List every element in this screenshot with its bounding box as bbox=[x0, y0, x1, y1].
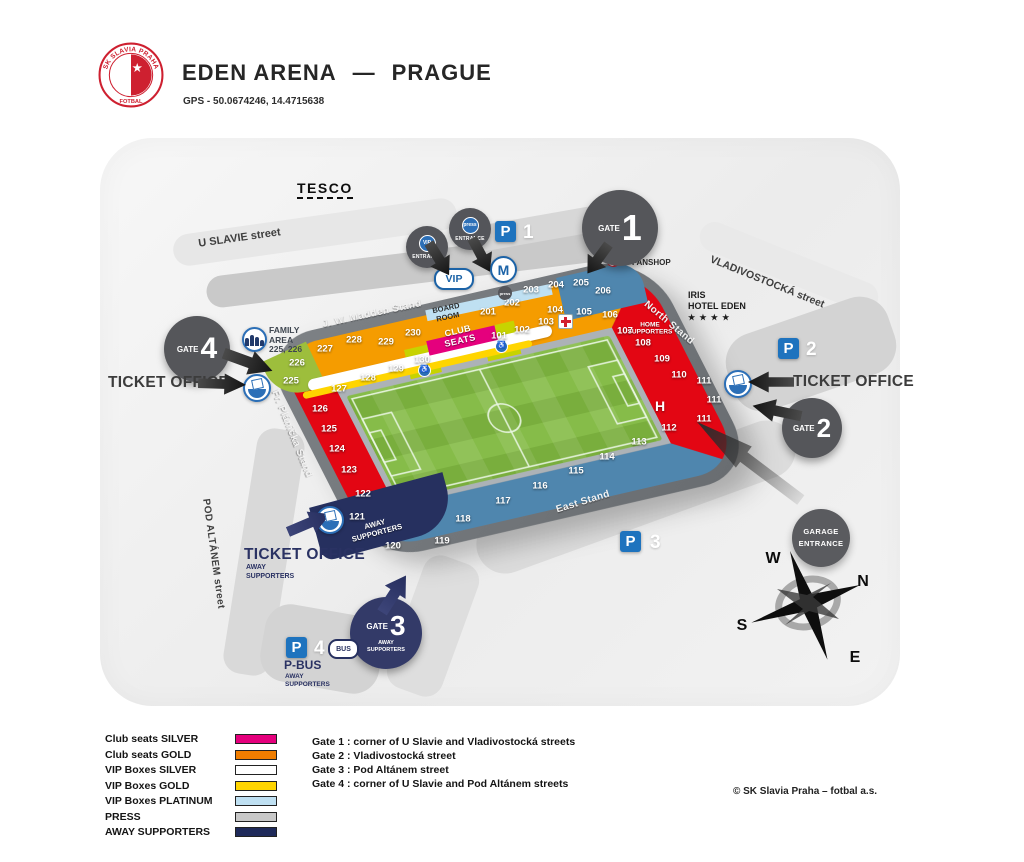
section-204: 204 bbox=[548, 280, 564, 291]
section-105: 105 bbox=[576, 307, 592, 318]
bus-text: BUS bbox=[336, 646, 351, 653]
wheelchair-icon-130: ♿ bbox=[418, 364, 431, 377]
slavia-logo: SK SLAVIA PRAHA FOTBAL ★ bbox=[98, 42, 164, 108]
section-206: 206 bbox=[595, 286, 611, 297]
section-228: 228 bbox=[346, 335, 362, 346]
section-230: 230 bbox=[405, 328, 421, 339]
section-109: 109 bbox=[654, 354, 670, 365]
section-113: 113 bbox=[631, 437, 646, 448]
section-226: 226 bbox=[289, 358, 305, 369]
tesco-label: TESCO bbox=[297, 180, 353, 199]
home-supporters-label: HOME SUPPORTERS bbox=[628, 322, 673, 337]
legend-swatch bbox=[235, 812, 277, 822]
stadium-map-page: SK SLAVIA PRAHA FOTBAL ★ EDEN ARENA—PRAG… bbox=[0, 0, 1024, 862]
gate-1-circle: GATE 1 bbox=[582, 190, 658, 266]
wheelchair-icon-101: ♿ bbox=[495, 340, 508, 353]
gate-description-1: Gate 1 : corner of U Slavie and Vladivos… bbox=[312, 735, 575, 749]
section-225: 225 bbox=[283, 376, 299, 387]
garage-line1: GARAGE bbox=[803, 526, 838, 538]
legend-item-6: AWAY SUPPORTERS bbox=[105, 826, 277, 838]
gate-2-circle: GATE 2 bbox=[782, 398, 842, 458]
section-205: 205 bbox=[573, 278, 589, 289]
gate-4-word: GATE bbox=[177, 345, 199, 354]
section-121: 121 bbox=[349, 512, 365, 523]
p1-letter: P bbox=[500, 223, 510, 240]
section-120: 120 bbox=[385, 541, 401, 552]
parking-p4-sign: P bbox=[286, 637, 307, 658]
gate-4-circle: GATE 4 bbox=[164, 316, 230, 382]
section-110: 110 bbox=[671, 370, 686, 381]
section-114: 114 bbox=[599, 452, 614, 463]
section-203: 203 bbox=[523, 285, 539, 296]
parking-p4-number: 4 bbox=[314, 638, 325, 660]
h-marker: H bbox=[655, 398, 665, 414]
compass-north: N bbox=[857, 573, 869, 591]
legend-item-4: VIP Boxes PLATINUM bbox=[105, 795, 277, 807]
p3-letter: P bbox=[625, 533, 635, 550]
section-106: 106 bbox=[602, 310, 618, 321]
parking-p3-sign: P bbox=[620, 531, 641, 552]
section-124: 124 bbox=[329, 444, 345, 455]
title-city: PRAGUE bbox=[392, 60, 492, 85]
section-103: 103 bbox=[538, 317, 554, 328]
legend-label: Club seats SILVER bbox=[105, 733, 198, 745]
page-title: EDEN ARENA—PRAGUE bbox=[182, 60, 492, 86]
section-111-a: 111 bbox=[697, 376, 712, 387]
legend-label: PRESS bbox=[105, 811, 141, 823]
parking-p2-number: 2 bbox=[806, 339, 817, 361]
mcdonalds-m: M bbox=[498, 262, 510, 278]
title-arena: EDEN ARENA bbox=[182, 60, 337, 85]
section-112: 112 bbox=[661, 423, 676, 434]
copyright: © SK Slavia Praha – fotbal a.s. bbox=[700, 786, 910, 797]
gate-1-number: 1 bbox=[622, 210, 642, 246]
section-102: 102 bbox=[514, 325, 530, 336]
gate-description-4: Gate 4 : corner of U Slavie and Pod Altá… bbox=[312, 777, 575, 791]
ticket-office-icon-west bbox=[243, 374, 271, 402]
gate-1-word: GATE bbox=[598, 224, 620, 233]
legend-swatch bbox=[235, 796, 277, 806]
first-aid-icon bbox=[558, 314, 573, 329]
bus-badge: BUS bbox=[328, 639, 359, 659]
section-126: 126 bbox=[312, 404, 328, 415]
parking-p2-sign: P bbox=[778, 338, 799, 359]
gate-3-sub2: SUPPORTERS bbox=[367, 647, 405, 654]
section-122: 122 bbox=[355, 489, 371, 500]
parking-p1-number: 1 bbox=[523, 222, 534, 244]
compass-south: S bbox=[737, 617, 748, 635]
gate-3-word: GATE bbox=[366, 622, 388, 631]
parking-p1-sign: P bbox=[495, 221, 516, 242]
parking-p3-number: 3 bbox=[650, 532, 661, 554]
section-123: 123 bbox=[341, 465, 357, 476]
press-badge-text: press bbox=[463, 222, 476, 228]
section-125: 125 bbox=[321, 424, 337, 435]
section-116: 116 bbox=[532, 481, 547, 492]
compass-west: W bbox=[765, 550, 780, 568]
ticket-office-away-sub: AWAY SUPPORTERS bbox=[246, 563, 294, 581]
legend-item-2: VIP Boxes SILVER bbox=[105, 764, 277, 776]
gate-descriptions: Gate 1 : corner of U Slavie and Vladivos… bbox=[312, 735, 575, 791]
section-227: 227 bbox=[317, 344, 333, 355]
ticket-office-icon-north bbox=[724, 370, 752, 398]
legend: Club seats SILVERClub seats GOLDVIP Boxe… bbox=[105, 733, 277, 838]
legend-item-5: PRESS bbox=[105, 811, 277, 823]
gate-2-word: GATE bbox=[793, 424, 815, 433]
legend-swatch bbox=[235, 827, 277, 837]
family-area-icon bbox=[242, 327, 267, 352]
p-bus-sub1: AWAY bbox=[285, 673, 330, 681]
title-dash: — bbox=[353, 60, 376, 85]
legend-label: VIP Boxes SILVER bbox=[105, 764, 196, 776]
ticket-office-away-label: TICKET OFFICE bbox=[244, 546, 365, 564]
p-bus-sub: AWAY SUPPORTERS bbox=[285, 673, 330, 690]
press-dot-text: press bbox=[500, 291, 511, 296]
press-gate-icon: press bbox=[498, 286, 512, 300]
logo-bottom-text: FOTBAL bbox=[120, 99, 143, 105]
vip-oval-text: VIP bbox=[446, 273, 463, 285]
iris-line2: HOTEL EDEN bbox=[688, 301, 746, 312]
ticket-office-north-label: TICKET OFFICE bbox=[793, 373, 914, 391]
compass-east: E bbox=[850, 649, 861, 667]
p-bus-label: P-BUS bbox=[284, 658, 321, 672]
mcdonalds-icon: M bbox=[490, 256, 517, 283]
p4-letter: P bbox=[291, 639, 301, 656]
gate-description-2: Gate 2 : Vladivostocká street bbox=[312, 749, 575, 763]
section-108: 108 bbox=[635, 338, 651, 349]
vip-gate-icon: VIP bbox=[434, 268, 474, 290]
section-117: 117 bbox=[495, 496, 510, 507]
gps-coordinates: GPS - 50.0674246, 14.4715638 bbox=[183, 96, 324, 107]
gate-description-3: Gate 3 : Pod Altánem street bbox=[312, 763, 575, 777]
legend-item-3: VIP Boxes GOLD bbox=[105, 780, 277, 792]
legend-label: Club seats GOLD bbox=[105, 749, 191, 761]
gate-3-number: 3 bbox=[390, 612, 406, 640]
section-229: 229 bbox=[378, 337, 394, 348]
section-127: 127 bbox=[331, 384, 347, 395]
legend-swatch bbox=[235, 750, 277, 760]
legend-item-1: Club seats GOLD bbox=[105, 749, 277, 761]
family-area-sections: 225, 226 bbox=[269, 345, 302, 355]
section-201: 201 bbox=[480, 307, 496, 318]
logo-star: ★ bbox=[132, 61, 143, 75]
legend-label: VIP Boxes GOLD bbox=[105, 780, 189, 792]
p2-letter: P bbox=[783, 340, 793, 357]
ticket-office-away-sub1: AWAY bbox=[246, 563, 294, 572]
iris-line1: IRIS bbox=[688, 290, 746, 301]
gate-4-number: 4 bbox=[200, 334, 217, 364]
section-115: 115 bbox=[568, 466, 583, 477]
legend-item-0: Club seats SILVER bbox=[105, 733, 277, 745]
section-118: 118 bbox=[455, 514, 470, 525]
home-supporters-line2: SUPPORTERS bbox=[628, 329, 673, 336]
family-area-text: FAMILY AREA 225, 226 bbox=[269, 326, 302, 355]
legend-swatch bbox=[235, 734, 277, 744]
gate-3-sub1: AWAY bbox=[378, 640, 394, 647]
p-bus-sub2: SUPPORTERS bbox=[285, 681, 330, 689]
legend-swatch bbox=[235, 781, 277, 791]
legend-label: AWAY SUPPORTERS bbox=[105, 826, 210, 838]
legend-label: VIP Boxes PLATINUM bbox=[105, 795, 213, 807]
section-129: 129 bbox=[388, 364, 404, 375]
section-128: 128 bbox=[360, 373, 376, 384]
iris-hotel-block: IRIS HOTEL EDEN ★ ★ ★ ★ bbox=[688, 290, 746, 323]
press-entrance-badge: press bbox=[462, 217, 479, 234]
ticket-office-away-sub2: SUPPORTERS bbox=[246, 572, 294, 581]
section-111-b: 111 bbox=[707, 395, 722, 406]
legend-swatch bbox=[235, 765, 277, 775]
iris-stars: ★ ★ ★ ★ bbox=[688, 312, 746, 323]
gate-2-number: 2 bbox=[817, 415, 831, 441]
section-119: 119 bbox=[434, 536, 449, 547]
gate-3-row: GATE 3 bbox=[366, 612, 405, 640]
